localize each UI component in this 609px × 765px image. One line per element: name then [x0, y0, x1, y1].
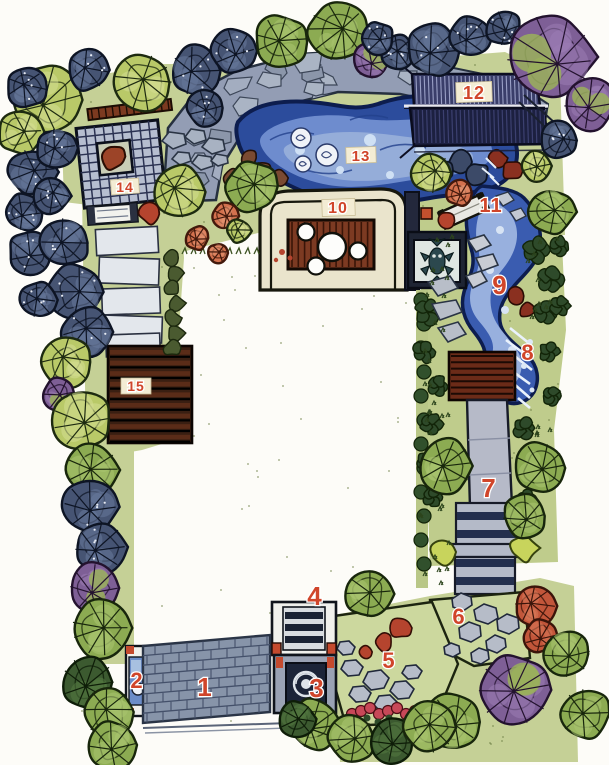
- svg-text:6: 6: [452, 604, 465, 629]
- svg-text:3: 3: [309, 673, 324, 703]
- svg-text:2: 2: [130, 668, 143, 693]
- svg-text:5: 5: [382, 648, 395, 673]
- svg-text:4: 4: [307, 581, 322, 611]
- svg-text:10: 10: [328, 200, 348, 217]
- svg-text:15: 15: [127, 378, 145, 394]
- svg-text:1: 1: [197, 672, 212, 702]
- svg-text:7: 7: [481, 473, 496, 503]
- svg-text:12: 12: [463, 83, 485, 103]
- svg-text:11: 11: [479, 195, 502, 217]
- svg-text:8: 8: [521, 340, 534, 365]
- svg-text:13: 13: [352, 148, 371, 165]
- svg-text:9: 9: [492, 270, 507, 300]
- svg-text:14: 14: [116, 179, 134, 195]
